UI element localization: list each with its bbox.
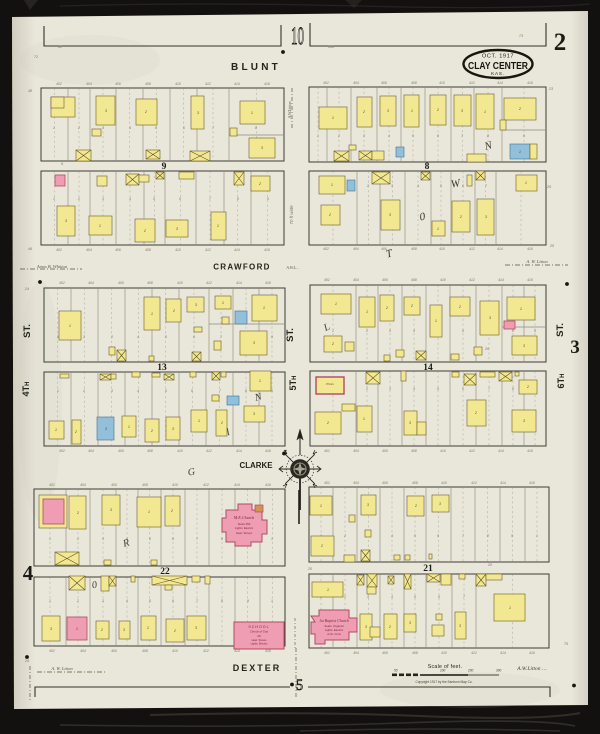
svg-text:402: 402 xyxy=(323,247,329,251)
svg-text:2: 2 xyxy=(100,628,103,632)
svg-text:3: 3 xyxy=(197,111,199,115)
svg-text:5: 5 xyxy=(414,595,416,599)
svg-text:5: 5 xyxy=(437,387,439,391)
svg-text:DEXTER: DEXTER xyxy=(233,663,282,673)
svg-text:4: 4 xyxy=(413,329,415,333)
svg-text:410: 410 xyxy=(177,281,183,285)
svg-text:Heat: Stoves: Heat: Stoves xyxy=(236,531,253,535)
svg-text:5: 5 xyxy=(149,537,151,541)
svg-text:1: 1 xyxy=(217,224,219,228)
svg-text:1: 1 xyxy=(57,389,59,393)
svg-text:2: 2 xyxy=(518,107,521,111)
svg-text:1: 1 xyxy=(332,329,334,333)
svg-text:6: 6 xyxy=(437,534,439,538)
svg-text:A.W.L…: A.W.L… xyxy=(285,265,300,270)
svg-text:5: 5 xyxy=(149,599,151,603)
svg-text:1: 1 xyxy=(128,425,130,429)
svg-text:404: 404 xyxy=(88,281,94,285)
svg-text:2: 2 xyxy=(362,110,365,114)
svg-text:5: 5 xyxy=(155,126,157,130)
svg-text:2: 2 xyxy=(331,342,334,346)
svg-text:1: 1 xyxy=(320,504,322,508)
svg-text:2: 2 xyxy=(343,595,346,599)
svg-text:1: 1 xyxy=(520,307,522,311)
svg-text:410: 410 xyxy=(177,449,183,453)
svg-text:3: 3 xyxy=(570,337,580,358)
svg-text:3: 3 xyxy=(110,508,112,512)
svg-text:CLARKE: CLARKE xyxy=(240,461,274,470)
svg-text:7: 7 xyxy=(461,134,463,138)
svg-text:SCHOOL: SCHOOL xyxy=(248,625,269,629)
svg-text:2: 2 xyxy=(526,385,529,389)
svg-text:7: 7 xyxy=(485,184,487,188)
svg-text:2: 2 xyxy=(172,309,175,313)
svg-text:3: 3 xyxy=(195,303,197,307)
svg-text:3: 3 xyxy=(253,412,255,416)
svg-text:3: 3 xyxy=(367,503,369,507)
svg-text:412: 412 xyxy=(471,651,477,655)
svg-text:KAS.: KAS. xyxy=(491,71,505,76)
svg-text:70 ft wide: 70 ft wide xyxy=(289,205,294,225)
svg-text:406: 406 xyxy=(381,81,387,85)
svg-text:CRAWFORD: CRAWFORD xyxy=(213,263,271,272)
svg-text:2: 2 xyxy=(459,215,462,219)
svg-text:9: 9 xyxy=(247,599,249,603)
svg-text:416: 416 xyxy=(264,82,270,86)
svg-text:6: 6 xyxy=(437,134,439,138)
svg-text:2: 2 xyxy=(554,29,567,56)
svg-text:1: 1 xyxy=(222,301,224,305)
svg-text:2: 2 xyxy=(474,411,477,415)
svg-text:3: 3 xyxy=(365,625,367,629)
svg-text:308: 308 xyxy=(328,45,334,49)
svg-text:3: 3 xyxy=(261,146,263,150)
svg-text:3: 3 xyxy=(176,227,178,231)
svg-text:3: 3 xyxy=(489,316,491,320)
svg-text:408: 408 xyxy=(411,449,417,453)
svg-text:402: 402 xyxy=(59,281,65,285)
svg-text:5: 5 xyxy=(412,134,414,138)
svg-text:2: 2 xyxy=(77,126,80,130)
svg-text:1: 1 xyxy=(327,588,329,592)
svg-text:1: 1 xyxy=(148,510,150,514)
svg-text:3: 3 xyxy=(387,109,389,113)
svg-text:2: 2 xyxy=(458,305,461,309)
svg-text:402: 402 xyxy=(324,481,330,485)
svg-text:1: 1 xyxy=(147,626,149,630)
svg-text:Copyright 1917 by the Sanborn: Copyright 1917 by the Sanborn Map Co. xyxy=(415,680,472,684)
svg-text:2: 2 xyxy=(366,184,369,188)
svg-text:414: 414 xyxy=(498,449,504,453)
svg-text:25: 25 xyxy=(549,244,555,248)
svg-text:4: 4 xyxy=(391,595,393,599)
svg-text:410: 410 xyxy=(172,483,178,487)
svg-text:1: 1 xyxy=(151,312,153,316)
svg-text:408: 408 xyxy=(145,82,151,86)
svg-text:2: 2 xyxy=(337,134,340,138)
svg-text:4: 4 xyxy=(129,126,131,130)
svg-text:1: 1 xyxy=(69,324,71,328)
svg-text:6: 6 xyxy=(462,329,464,333)
svg-text:406: 406 xyxy=(111,649,117,653)
svg-text:2: 2 xyxy=(388,625,391,629)
svg-text:8: 8 xyxy=(425,162,430,172)
svg-text:410: 410 xyxy=(440,449,446,453)
svg-text:410: 410 xyxy=(175,248,181,252)
svg-text:404: 404 xyxy=(353,651,359,655)
svg-text:2: 2 xyxy=(82,335,85,339)
svg-text:2: 2 xyxy=(74,430,77,434)
svg-text:8: 8 xyxy=(237,197,239,201)
svg-text:3: 3 xyxy=(105,109,107,113)
svg-text:3: 3 xyxy=(523,344,525,348)
svg-text:2: 2 xyxy=(76,599,79,603)
svg-text:402: 402 xyxy=(324,651,330,655)
svg-text:410: 410 xyxy=(439,81,445,85)
svg-text:2: 2 xyxy=(258,182,261,186)
svg-text:3: 3 xyxy=(65,219,67,223)
svg-text:7: 7 xyxy=(463,595,465,599)
svg-text:2: 2 xyxy=(82,389,85,393)
svg-text:4: 4 xyxy=(137,389,139,393)
svg-text:412: 412 xyxy=(205,82,211,86)
svg-text:1: 1 xyxy=(259,379,261,383)
svg-text:3: 3 xyxy=(409,621,411,625)
svg-text:5: 5 xyxy=(440,184,442,188)
svg-text:Lights: Electric: Lights: Electric xyxy=(235,526,254,530)
svg-text:404: 404 xyxy=(88,449,94,453)
svg-text:9: 9 xyxy=(534,329,536,333)
svg-text:9: 9 xyxy=(162,162,167,172)
svg-text:8: 8 xyxy=(245,389,247,393)
svg-text:1: 1 xyxy=(366,310,368,314)
svg-text:408: 408 xyxy=(412,651,418,655)
svg-text:24: 24 xyxy=(24,659,29,663)
svg-text:2: 2 xyxy=(320,544,323,548)
svg-text:8: 8 xyxy=(512,329,514,333)
svg-text:402: 402 xyxy=(49,649,55,653)
svg-text:7: 7 xyxy=(196,599,198,603)
svg-text:6: 6 xyxy=(179,197,181,201)
svg-text:5: 5 xyxy=(414,534,416,538)
svg-text:5: 5 xyxy=(296,677,303,694)
svg-text:406: 406 xyxy=(118,281,124,285)
svg-text:3: 3 xyxy=(389,213,391,217)
svg-text:4: 4 xyxy=(23,561,34,585)
svg-text:9: 9 xyxy=(523,134,525,138)
svg-text:2: 2 xyxy=(326,421,329,425)
svg-text:408: 408 xyxy=(147,281,153,285)
svg-text:ST.: ST. xyxy=(22,324,33,338)
svg-text:408: 408 xyxy=(147,449,153,453)
svg-text:2: 2 xyxy=(385,306,388,310)
svg-text:412: 412 xyxy=(469,247,475,251)
svg-text:3: 3 xyxy=(105,427,107,431)
svg-text:1: 1 xyxy=(484,110,486,114)
svg-text:A.W.Litton …: A.W.Litton … xyxy=(516,666,547,672)
svg-text:416: 416 xyxy=(527,247,533,251)
svg-text:21: 21 xyxy=(423,564,433,574)
svg-text:412: 412 xyxy=(205,248,211,252)
svg-text:7: 7 xyxy=(196,537,198,541)
svg-text:1: 1 xyxy=(198,419,200,423)
svg-text:A. W. Litton: A. W. Litton xyxy=(525,259,548,264)
svg-text:404: 404 xyxy=(80,483,86,487)
svg-text:2: 2 xyxy=(77,197,80,201)
svg-text:402: 402 xyxy=(56,82,62,86)
svg-text:4: 4 xyxy=(391,534,393,538)
svg-text:A. W. Litton: A. W. Litton xyxy=(50,666,73,671)
svg-text:25: 25 xyxy=(546,185,552,189)
svg-text:408: 408 xyxy=(142,483,148,487)
svg-text:414: 414 xyxy=(234,248,240,252)
svg-text:3: 3 xyxy=(389,387,391,391)
svg-text:412: 412 xyxy=(469,449,475,453)
svg-text:8: 8 xyxy=(255,126,257,130)
svg-text:22: 22 xyxy=(160,567,170,577)
svg-text:9: 9 xyxy=(271,335,273,339)
svg-text:Lights: Electric: Lights: Electric xyxy=(251,642,269,646)
svg-text:3: 3 xyxy=(389,329,391,333)
svg-text:3: 3 xyxy=(102,126,104,130)
svg-text:9: 9 xyxy=(511,534,513,538)
svg-text:1: 1 xyxy=(99,224,101,228)
svg-text:4: 4 xyxy=(413,387,415,391)
svg-text:1: 1 xyxy=(335,302,337,306)
svg-text:1st Baptist Church: 1st Baptist Church xyxy=(319,618,349,623)
svg-text:4: 4 xyxy=(388,134,390,138)
svg-text:1: 1 xyxy=(251,111,253,115)
svg-text:8: 8 xyxy=(221,599,223,603)
svg-text:3: 3 xyxy=(367,595,369,599)
svg-text:404: 404 xyxy=(353,278,359,282)
svg-text:20: 20 xyxy=(487,563,493,567)
svg-text:412: 412 xyxy=(203,649,209,653)
svg-text:3: 3 xyxy=(409,421,411,425)
svg-text:5: 5 xyxy=(153,197,155,201)
svg-text:9: 9 xyxy=(271,389,273,393)
svg-text:406: 406 xyxy=(118,449,124,453)
svg-text:3: 3 xyxy=(253,341,255,345)
svg-text:OCT. 1917: OCT. 1917 xyxy=(482,54,514,60)
svg-text:402: 402 xyxy=(49,483,55,487)
svg-text:8: 8 xyxy=(487,534,489,538)
svg-text:3: 3 xyxy=(123,628,125,632)
svg-text:7: 7 xyxy=(220,335,222,339)
svg-text:2: 2 xyxy=(150,429,153,433)
svg-text:300: 300 xyxy=(496,669,502,673)
svg-text:7: 7 xyxy=(219,389,221,393)
svg-text:4: 4 xyxy=(129,197,131,201)
svg-text:Photo: Photo xyxy=(326,382,334,386)
svg-text:412: 412 xyxy=(469,278,475,282)
svg-text:3: 3 xyxy=(102,599,104,603)
svg-text:7: 7 xyxy=(212,126,214,130)
svg-text:1: 1 xyxy=(76,627,78,631)
svg-text:404: 404 xyxy=(353,247,359,251)
svg-text:1: 1 xyxy=(437,227,439,231)
svg-text:2: 2 xyxy=(343,534,346,538)
svg-text:24: 24 xyxy=(24,287,29,291)
svg-text:416: 416 xyxy=(265,483,271,487)
svg-text:of St. Croix: of St. Croix xyxy=(327,632,341,636)
svg-text:3: 3 xyxy=(172,427,174,431)
svg-text:Amos B. Whitton: Amos B. Whitton xyxy=(36,264,68,269)
svg-text:1: 1 xyxy=(55,428,57,432)
svg-text:416: 416 xyxy=(527,81,533,85)
svg-text:M.E.Church: M.E.Church xyxy=(233,515,255,520)
svg-text:1: 1 xyxy=(525,181,527,185)
svg-text:6: 6 xyxy=(172,599,174,603)
svg-text:406: 406 xyxy=(115,82,121,86)
svg-text:414: 414 xyxy=(498,278,504,282)
svg-text:406: 406 xyxy=(382,278,388,282)
svg-text:2: 2 xyxy=(365,329,368,333)
svg-text:402: 402 xyxy=(324,449,330,453)
svg-text:2: 2 xyxy=(436,108,439,112)
svg-text:410: 410 xyxy=(440,278,446,282)
svg-text:2: 2 xyxy=(365,387,368,391)
svg-text:416: 416 xyxy=(527,449,533,453)
svg-text:1: 1 xyxy=(263,306,265,310)
svg-text:408: 408 xyxy=(411,247,417,251)
svg-text:4: 4 xyxy=(417,184,419,188)
svg-text:3: 3 xyxy=(111,389,113,393)
svg-text:1: 1 xyxy=(317,134,319,138)
svg-text:406: 406 xyxy=(382,481,388,485)
svg-text:100: 100 xyxy=(440,669,446,673)
svg-text:Heat: Stoves: Heat: Stoves xyxy=(252,638,268,642)
svg-text:BLUNT: BLUNT xyxy=(231,62,281,73)
svg-text:4: 4 xyxy=(137,335,139,339)
svg-text:ST.: ST. xyxy=(285,328,296,342)
svg-text:416: 416 xyxy=(264,248,270,252)
svg-text:3: 3 xyxy=(102,537,104,541)
svg-text:416: 416 xyxy=(265,449,271,453)
svg-text:410: 410 xyxy=(439,247,445,251)
svg-text:4: 4 xyxy=(126,599,128,603)
svg-text:29: 29 xyxy=(257,634,261,638)
svg-text:2: 2 xyxy=(328,213,331,217)
svg-text:2: 2 xyxy=(220,421,223,425)
svg-text:7: 7 xyxy=(462,534,464,538)
svg-text:412: 412 xyxy=(203,483,209,487)
svg-text:8: 8 xyxy=(512,387,514,391)
svg-text:3: 3 xyxy=(439,502,441,506)
svg-text:8: 8 xyxy=(221,537,223,541)
svg-text:13: 13 xyxy=(157,363,167,373)
svg-text:406: 406 xyxy=(382,449,388,453)
svg-text:410: 410 xyxy=(441,481,447,485)
svg-text:A.W.Litton: A.W.Litton xyxy=(287,102,292,120)
svg-text:1: 1 xyxy=(49,537,51,541)
svg-text:408: 408 xyxy=(411,81,417,85)
svg-text:3: 3 xyxy=(363,134,365,138)
svg-text:3: 3 xyxy=(459,624,461,628)
svg-text:406: 406 xyxy=(382,651,388,655)
svg-text:1: 1 xyxy=(411,109,413,113)
svg-text:Church of God: Church of God xyxy=(250,630,269,634)
svg-text:6: 6 xyxy=(191,389,193,393)
svg-text:6: 6 xyxy=(172,537,174,541)
svg-text:402: 402 xyxy=(56,248,62,252)
svg-text:2: 2 xyxy=(173,629,176,633)
svg-text:1: 1 xyxy=(271,599,273,603)
svg-text:412: 412 xyxy=(469,81,475,85)
svg-text:410: 410 xyxy=(172,649,178,653)
svg-text:416: 416 xyxy=(265,281,271,285)
svg-text:2: 2 xyxy=(170,509,173,513)
svg-text:408: 408 xyxy=(142,649,148,653)
svg-text:6: 6 xyxy=(183,126,185,130)
svg-text:3: 3 xyxy=(50,627,52,631)
svg-text:3: 3 xyxy=(102,197,104,201)
svg-text:402: 402 xyxy=(59,449,65,453)
svg-text:414: 414 xyxy=(234,82,240,86)
svg-text:1: 1 xyxy=(536,534,538,538)
svg-text:8: 8 xyxy=(487,134,489,138)
svg-text:1: 1 xyxy=(332,116,334,120)
svg-text:404: 404 xyxy=(353,81,359,85)
svg-text:2: 2 xyxy=(144,110,147,114)
svg-text:20: 20 xyxy=(307,567,313,571)
svg-text:6: 6 xyxy=(193,335,195,339)
svg-text:416: 416 xyxy=(265,649,271,653)
svg-text:3: 3 xyxy=(523,419,525,423)
svg-text:414: 414 xyxy=(236,281,242,285)
svg-text:402: 402 xyxy=(324,278,330,282)
svg-text:404: 404 xyxy=(86,248,92,252)
svg-text:414: 414 xyxy=(497,81,503,85)
svg-text:3: 3 xyxy=(461,109,463,113)
svg-text:406: 406 xyxy=(111,483,117,487)
svg-text:7: 7 xyxy=(488,387,490,391)
svg-text:200: 200 xyxy=(467,669,474,673)
svg-text:6: 6 xyxy=(462,184,464,188)
svg-text:1: 1 xyxy=(519,150,521,154)
svg-text:414: 414 xyxy=(236,449,242,453)
svg-text:414: 414 xyxy=(234,483,240,487)
svg-text:416: 416 xyxy=(529,481,535,485)
svg-text:402: 402 xyxy=(323,81,329,85)
svg-text:408: 408 xyxy=(411,278,417,282)
svg-text:416: 416 xyxy=(527,278,533,282)
svg-text:50: 50 xyxy=(394,669,398,673)
svg-text:23: 23 xyxy=(548,87,554,91)
svg-text:2: 2 xyxy=(76,537,79,541)
svg-text:3: 3 xyxy=(485,215,487,219)
svg-text:1: 1 xyxy=(435,319,437,323)
svg-text:ST.: ST. xyxy=(555,323,566,337)
svg-text:414: 414 xyxy=(500,651,506,655)
svg-text:3: 3 xyxy=(111,335,113,339)
svg-text:1: 1 xyxy=(271,537,273,541)
svg-text:1: 1 xyxy=(53,197,55,201)
svg-text:1: 1 xyxy=(49,599,51,603)
svg-text:3: 3 xyxy=(195,626,197,630)
svg-text:26: 26 xyxy=(484,347,490,351)
svg-text:5: 5 xyxy=(165,389,167,393)
svg-text:1: 1 xyxy=(509,606,511,610)
svg-text:2: 2 xyxy=(76,511,79,515)
svg-text:410: 410 xyxy=(175,82,181,86)
svg-text:1: 1 xyxy=(363,417,365,421)
svg-text:1: 1 xyxy=(53,126,55,130)
svg-text:408: 408 xyxy=(412,481,418,485)
svg-text:1: 1 xyxy=(331,183,333,187)
svg-text:416: 416 xyxy=(529,651,535,655)
svg-text:9: 9 xyxy=(267,197,269,201)
